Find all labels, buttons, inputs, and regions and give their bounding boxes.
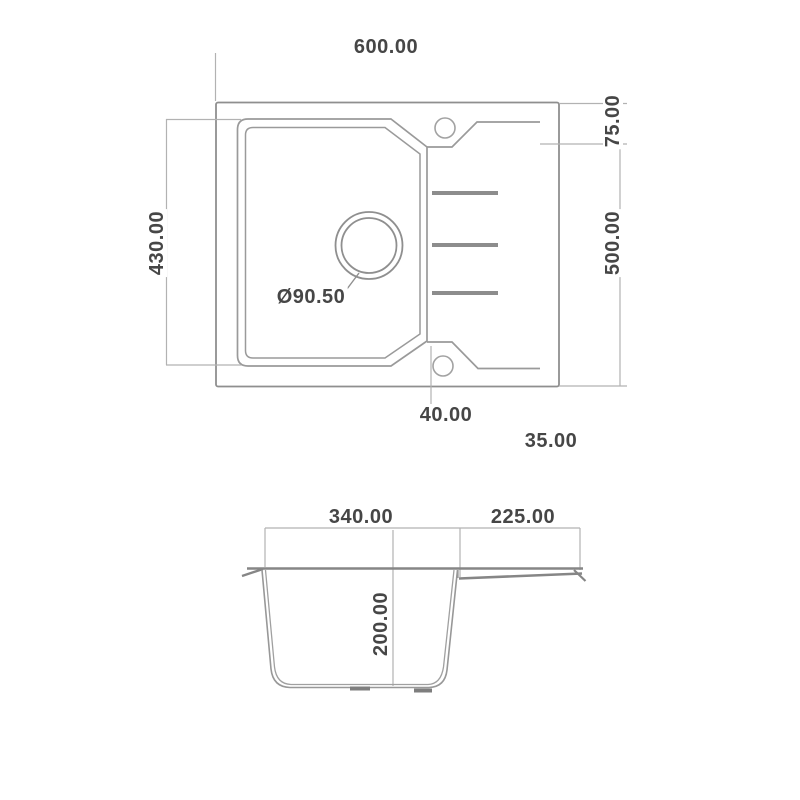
section-left-lip [242, 569, 263, 576]
dim-rim-top-offset: 75.00 [603, 93, 623, 150]
dim-drainer-width: 225.00 [489, 507, 557, 527]
section-bowl-inner [266, 570, 455, 685]
dim-overall-width: 600.00 [352, 37, 420, 57]
faucet-hole-top [435, 118, 455, 138]
section-view [242, 528, 586, 691]
dim-drain-diameter: Ø90.50 [275, 287, 348, 307]
dim-edge-offset: 35.00 [523, 431, 580, 451]
bowl-rim-outer [238, 119, 428, 366]
drain-circle-inner [342, 218, 397, 273]
bowl-rim-inner [246, 128, 421, 359]
section-drainer-surface [459, 574, 582, 579]
drawing-linework [0, 0, 800, 800]
top-view-dimension-lines [166, 53, 627, 404]
section-right-lip [574, 570, 586, 581]
top-view [166, 53, 627, 404]
sink-technical-drawing: 600.00 430.00 75.00 500.00 Ø90.50 40.00 … [0, 0, 800, 800]
dim-bowl-depth: 430.00 [147, 209, 167, 277]
dim-bowl-width: 340.00 [327, 507, 395, 527]
rim-wing-top [427, 122, 540, 147]
section-dimension-lines [265, 528, 580, 686]
dim-overall-depth: 500.00 [603, 209, 623, 277]
drain-circle-outer [336, 212, 403, 279]
section-bowl-outer [262, 570, 458, 688]
sink-outer-outline [216, 103, 559, 387]
dim-bowl-height: 200.00 [371, 590, 391, 658]
faucet-hole-bottom [433, 356, 453, 376]
dim-wing-bottom-offset: 40.00 [418, 405, 475, 425]
